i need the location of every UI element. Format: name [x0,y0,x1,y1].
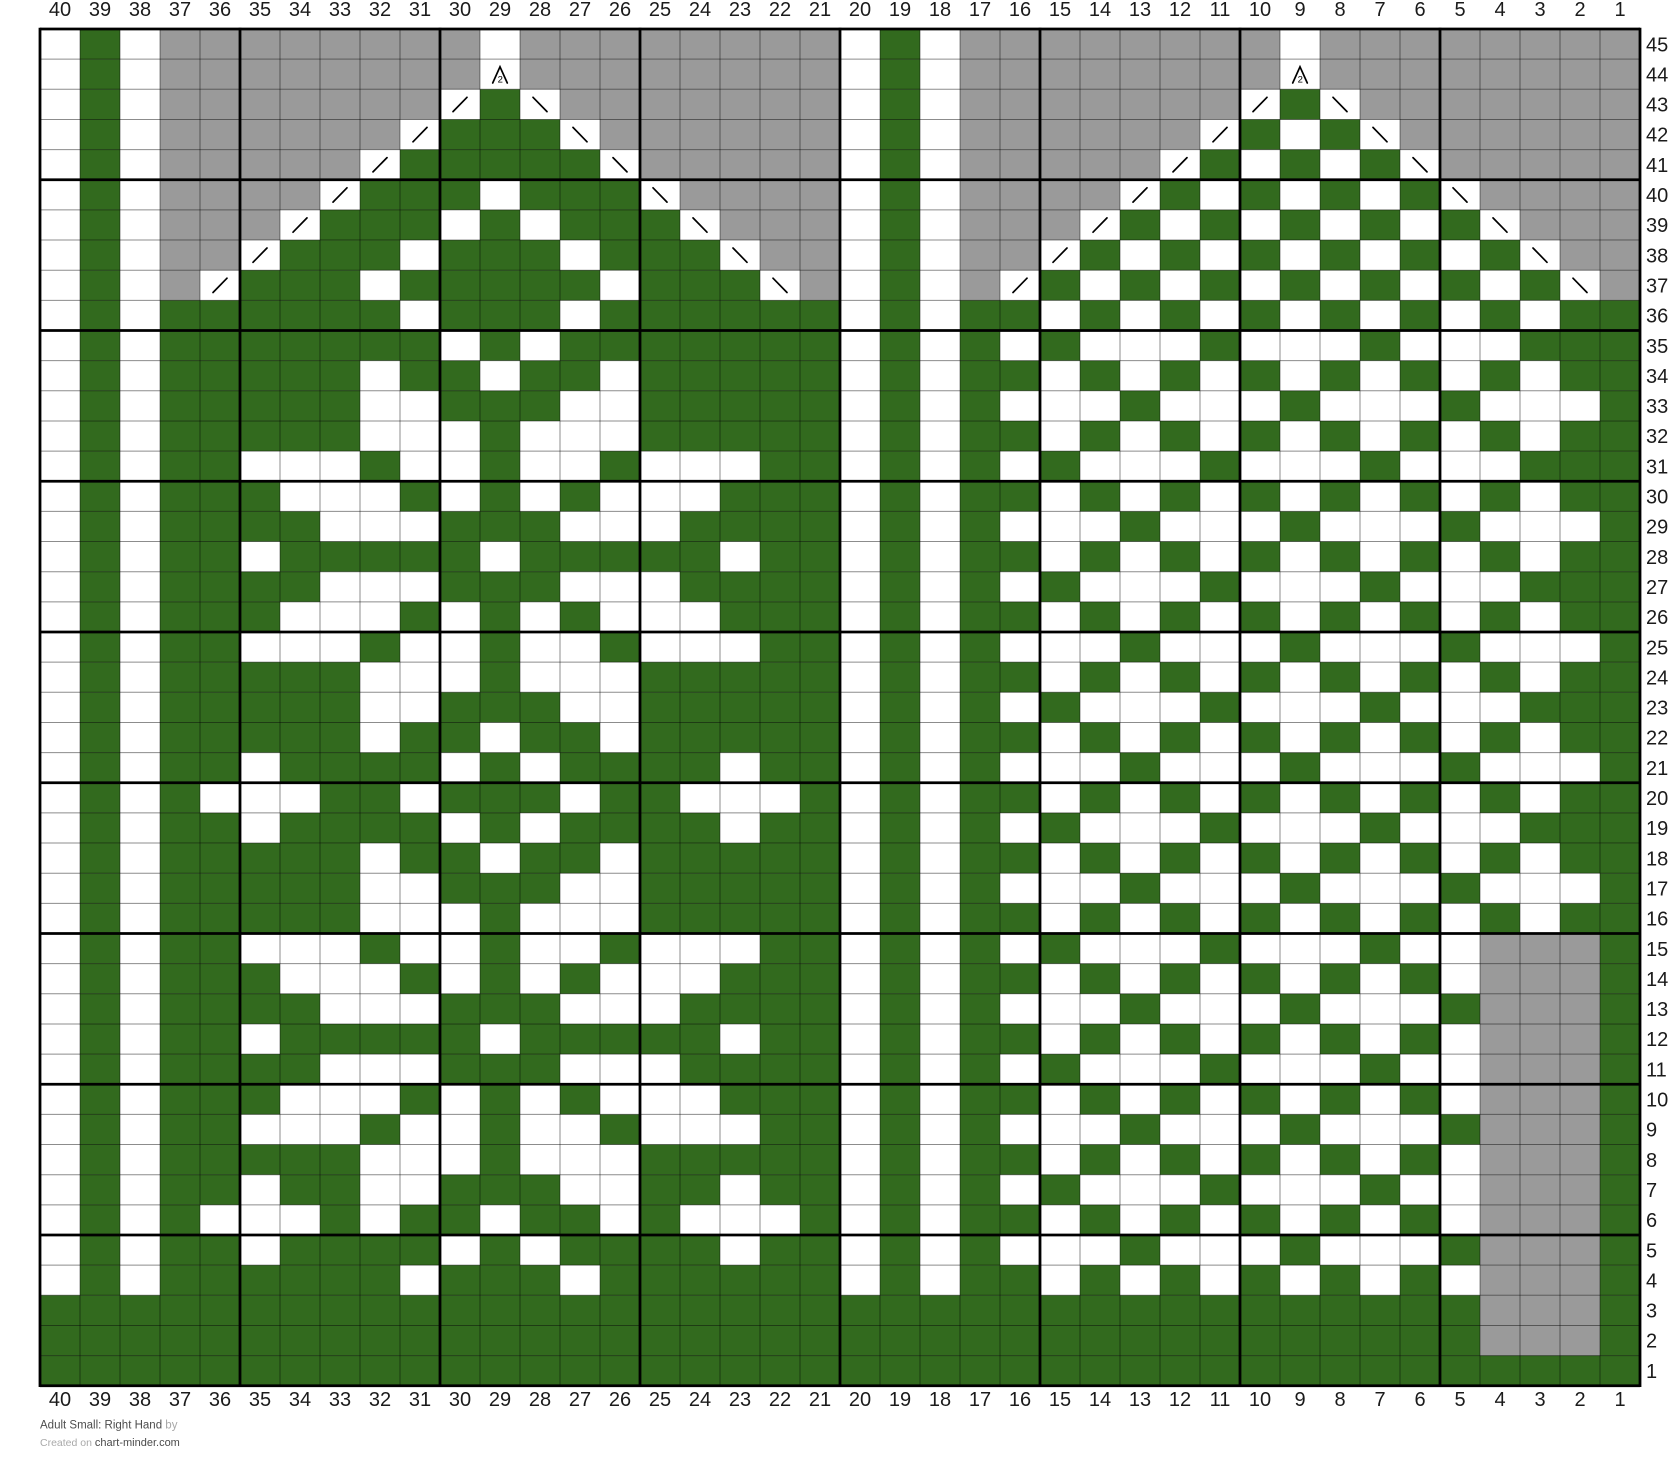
svg-text:15: 15 [1049,1389,1071,1411]
svg-text:39: 39 [1646,215,1668,237]
svg-text:33: 33 [329,0,351,21]
svg-text:7: 7 [1374,0,1385,21]
svg-text:20: 20 [849,1389,871,1411]
svg-text:12: 12 [1169,0,1191,21]
svg-text:19: 19 [1646,818,1668,840]
svg-text:32: 32 [1646,426,1668,448]
svg-text:39: 39 [89,1389,111,1411]
svg-text:28: 28 [529,1389,551,1411]
svg-text:31: 31 [409,1389,431,1411]
svg-text:18: 18 [1646,848,1668,870]
svg-text:40: 40 [49,1389,71,1411]
svg-text:10: 10 [1646,1090,1668,1112]
svg-text:9: 9 [1646,1120,1657,1142]
svg-text:33: 33 [329,1389,351,1411]
svg-text:27: 27 [1646,577,1668,599]
svg-text:21: 21 [809,1389,831,1411]
svg-text:14: 14 [1646,969,1668,991]
svg-text:20: 20 [849,0,871,21]
svg-text:29: 29 [489,1389,511,1411]
svg-text:2: 2 [498,75,503,86]
svg-text:12: 12 [1646,1029,1668,1051]
svg-text:21: 21 [1646,758,1668,780]
svg-text:12: 12 [1169,1389,1191,1411]
svg-text:8: 8 [1646,1150,1657,1172]
svg-text:36: 36 [209,0,231,21]
svg-text:16: 16 [1646,909,1668,931]
svg-text:8: 8 [1334,0,1345,21]
svg-text:10: 10 [1249,0,1271,21]
svg-text:37: 37 [169,1389,191,1411]
svg-text:39: 39 [89,0,111,21]
svg-text:2: 2 [1646,1331,1657,1353]
svg-text:32: 32 [369,0,391,21]
svg-text:11: 11 [1646,1059,1667,1081]
svg-text:13: 13 [1129,0,1151,21]
svg-text:1: 1 [1614,1389,1625,1411]
svg-text:22: 22 [769,0,791,21]
svg-text:41: 41 [1646,155,1668,177]
svg-text:22: 22 [769,1389,791,1411]
svg-text:6: 6 [1646,1210,1657,1232]
svg-text:17: 17 [969,0,991,21]
svg-text:Adult Small: Right Hand by: Adult Small: Right Hand by [40,1420,178,1432]
svg-text:13: 13 [1129,1389,1151,1411]
svg-text:16: 16 [1009,0,1031,21]
svg-text:5: 5 [1646,1240,1657,1262]
svg-text:4: 4 [1646,1270,1657,1292]
svg-text:40: 40 [1646,185,1668,207]
svg-text:28: 28 [1646,547,1668,569]
svg-text:37: 37 [169,0,191,21]
svg-text:3: 3 [1646,1301,1657,1323]
svg-text:7: 7 [1374,1389,1385,1411]
svg-text:10: 10 [1249,1389,1271,1411]
svg-text:3: 3 [1534,1389,1545,1411]
svg-text:28: 28 [529,0,551,21]
svg-text:16: 16 [1009,1389,1031,1411]
svg-text:42: 42 [1646,125,1668,147]
svg-text:14: 14 [1089,0,1111,21]
svg-text:4: 4 [1494,1389,1505,1411]
svg-text:6: 6 [1414,0,1425,21]
svg-text:35: 35 [249,0,271,21]
svg-text:4: 4 [1494,0,1505,21]
svg-text:15: 15 [1049,0,1071,21]
svg-text:40: 40 [49,0,71,21]
svg-text:29: 29 [1646,517,1668,539]
svg-text:9: 9 [1294,1389,1305,1411]
svg-text:9: 9 [1294,0,1305,21]
svg-text:2: 2 [1574,0,1585,21]
svg-text:20: 20 [1646,788,1668,810]
svg-text:23: 23 [1646,698,1668,720]
svg-text:38: 38 [129,0,151,21]
svg-text:6: 6 [1414,1389,1425,1411]
svg-text:7: 7 [1646,1180,1657,1202]
svg-text:14: 14 [1089,1389,1111,1411]
svg-text:19: 19 [889,0,911,21]
svg-text:30: 30 [449,1389,471,1411]
svg-text:35: 35 [1646,336,1668,358]
svg-text:1: 1 [1614,0,1625,21]
svg-text:17: 17 [1646,879,1668,901]
svg-text:2: 2 [1298,75,1303,86]
svg-text:21: 21 [809,0,831,21]
svg-text:32: 32 [369,1389,391,1411]
svg-text:18: 18 [929,1389,951,1411]
svg-text:26: 26 [1646,607,1668,629]
svg-text:23: 23 [729,0,751,21]
svg-text:13: 13 [1646,999,1668,1021]
svg-text:24: 24 [689,0,711,21]
svg-text:26: 26 [609,0,631,21]
svg-text:27: 27 [569,1389,591,1411]
svg-text:19: 19 [889,1389,911,1411]
svg-text:5: 5 [1454,1389,1465,1411]
svg-text:24: 24 [689,1389,711,1411]
svg-text:23: 23 [729,1389,751,1411]
svg-text:29: 29 [489,0,511,21]
svg-text:36: 36 [209,1389,231,1411]
svg-text:18: 18 [929,0,951,21]
svg-text:31: 31 [1646,456,1668,478]
svg-text:22: 22 [1646,728,1668,750]
svg-text:33: 33 [1646,396,1668,418]
svg-text:38: 38 [1646,245,1668,267]
svg-text:3: 3 [1534,0,1545,21]
svg-text:34: 34 [1646,366,1668,388]
svg-text:45: 45 [1646,34,1668,56]
svg-text:27: 27 [569,0,591,21]
svg-text:31: 31 [409,0,431,21]
svg-text:30: 30 [1646,487,1668,509]
svg-text:8: 8 [1334,1389,1345,1411]
svg-text:25: 25 [649,0,671,21]
svg-text:44: 44 [1646,64,1668,86]
svg-text:38: 38 [129,1389,151,1411]
svg-text:43: 43 [1646,95,1668,117]
svg-text:Created on chart-minder.com: Created on chart-minder.com [40,1437,180,1449]
svg-text:1: 1 [1646,1361,1657,1383]
svg-text:11: 11 [1210,0,1231,21]
svg-text:37: 37 [1646,276,1668,298]
svg-text:34: 34 [289,0,311,21]
svg-text:36: 36 [1646,306,1668,328]
svg-text:11: 11 [1210,1389,1231,1411]
svg-text:25: 25 [649,1389,671,1411]
svg-text:26: 26 [609,1389,631,1411]
svg-text:30: 30 [449,0,471,21]
svg-text:35: 35 [249,1389,271,1411]
svg-text:15: 15 [1646,939,1668,961]
svg-text:5: 5 [1454,0,1465,21]
svg-text:24: 24 [1646,667,1668,689]
svg-text:34: 34 [289,1389,311,1411]
svg-text:17: 17 [969,1389,991,1411]
svg-text:25: 25 [1646,637,1668,659]
svg-text:2: 2 [1574,1389,1585,1411]
